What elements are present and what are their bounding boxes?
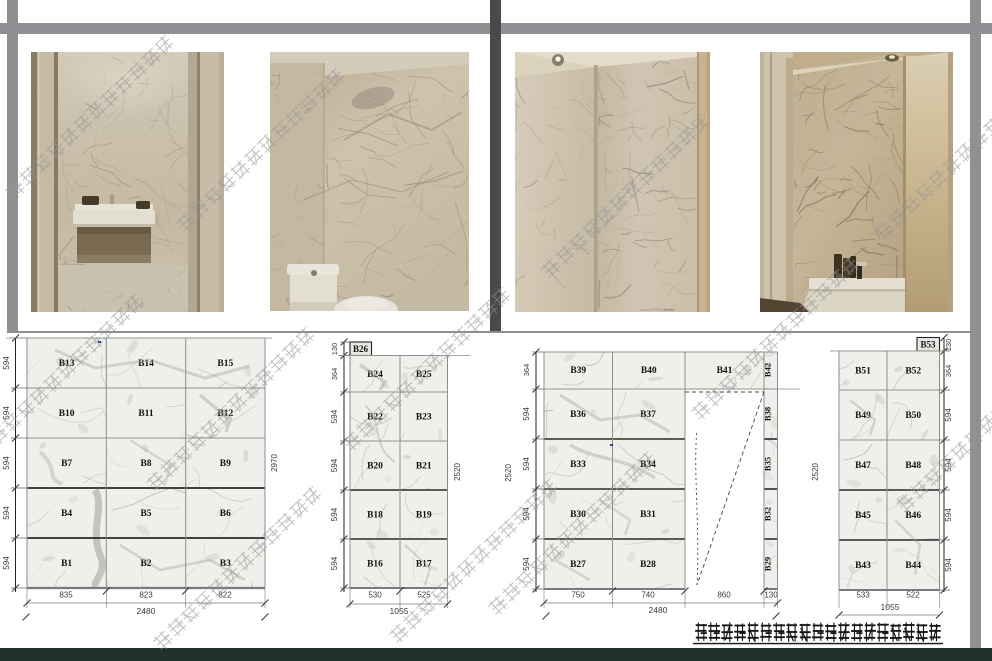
svg-text:750: 750 (571, 591, 585, 600)
svg-text:594: 594 (2, 356, 11, 370)
svg-text:594: 594 (522, 407, 531, 421)
svg-text:594: 594 (944, 408, 953, 422)
svg-text:B31: B31 (640, 510, 656, 520)
svg-text:B42: B42 (763, 363, 773, 377)
svg-text:594: 594 (944, 458, 953, 472)
svg-text:B32: B32 (763, 507, 773, 521)
svg-text:594: 594 (330, 556, 339, 570)
svg-text:B4: B4 (61, 509, 72, 519)
svg-text:2520: 2520 (453, 463, 462, 481)
svg-text:364: 364 (522, 364, 531, 377)
svg-text:B1: B1 (61, 559, 72, 569)
svg-text:2520: 2520 (811, 463, 820, 481)
svg-text:B48: B48 (905, 461, 921, 471)
svg-text:B43: B43 (855, 561, 871, 571)
svg-text:B18: B18 (367, 511, 383, 521)
svg-text:B9: B9 (220, 459, 231, 469)
svg-text:594: 594 (522, 507, 531, 521)
svg-text:B6: B6 (220, 509, 231, 519)
svg-text:B50: B50 (905, 411, 921, 421)
svg-text:130: 130 (330, 343, 339, 356)
svg-text:364: 364 (944, 365, 953, 378)
svg-text:B23: B23 (416, 413, 432, 423)
svg-text:B25: B25 (416, 370, 432, 380)
svg-text:B30: B30 (570, 510, 586, 520)
svg-text:1055: 1055 (390, 606, 409, 616)
svg-text:B16: B16 (367, 560, 383, 570)
svg-text:B29: B29 (763, 557, 773, 571)
svg-text:740: 740 (641, 591, 655, 600)
svg-text:525: 525 (417, 591, 431, 600)
svg-text:594: 594 (522, 457, 531, 471)
svg-text:130: 130 (764, 591, 778, 600)
svg-text:B33: B33 (570, 460, 586, 470)
svg-text:B40: B40 (641, 366, 657, 376)
svg-text:594: 594 (2, 456, 11, 470)
svg-text:823: 823 (139, 591, 153, 600)
svg-text:B46: B46 (905, 511, 921, 521)
svg-text:B39: B39 (570, 366, 586, 376)
svg-text:B8: B8 (140, 459, 151, 469)
svg-text:B52: B52 (905, 367, 921, 377)
svg-text:594: 594 (944, 558, 953, 572)
svg-text:B21: B21 (416, 462, 432, 472)
svg-text:B44: B44 (905, 561, 921, 571)
svg-text:594: 594 (330, 507, 339, 521)
svg-text:B53: B53 (920, 340, 936, 350)
svg-text:2970: 2970 (270, 454, 279, 472)
svg-text:B51: B51 (855, 367, 871, 377)
svg-text:B45: B45 (855, 511, 871, 521)
svg-text:B38: B38 (763, 407, 773, 421)
svg-text:835: 835 (59, 591, 73, 600)
svg-text:B26: B26 (353, 344, 369, 354)
svg-text:130: 130 (944, 339, 953, 352)
svg-text:860: 860 (717, 591, 731, 600)
svg-text:B7: B7 (61, 459, 72, 469)
svg-text:1055: 1055 (881, 602, 900, 612)
svg-text:594: 594 (944, 508, 953, 522)
svg-text:B28: B28 (640, 560, 656, 570)
svg-text:B11: B11 (138, 409, 154, 419)
svg-text:594: 594 (2, 556, 11, 570)
svg-text:B41: B41 (717, 366, 733, 376)
svg-text:522: 522 (906, 591, 920, 600)
svg-text:594: 594 (330, 458, 339, 472)
svg-text:594: 594 (522, 557, 531, 571)
svg-text:594: 594 (2, 406, 11, 420)
svg-text:530: 530 (368, 591, 382, 600)
svg-text:B19: B19 (416, 511, 432, 521)
svg-text:533: 533 (856, 591, 870, 600)
svg-text:2480: 2480 (137, 606, 156, 616)
svg-text:B34: B34 (640, 460, 656, 470)
svg-text:B15: B15 (217, 359, 233, 369)
svg-text:594: 594 (330, 409, 339, 423)
svg-text:B20: B20 (367, 462, 383, 472)
svg-text:2480: 2480 (649, 605, 668, 615)
svg-text:364: 364 (330, 368, 339, 381)
svg-text:B5: B5 (140, 509, 151, 519)
svg-text:B35: B35 (763, 457, 773, 471)
svg-text:2520: 2520 (504, 464, 513, 482)
svg-text:B47: B47 (855, 461, 871, 471)
svg-text:B10: B10 (59, 409, 75, 419)
svg-text:594: 594 (2, 506, 11, 520)
svg-text:B13: B13 (59, 359, 75, 369)
svg-text:822: 822 (218, 591, 232, 600)
